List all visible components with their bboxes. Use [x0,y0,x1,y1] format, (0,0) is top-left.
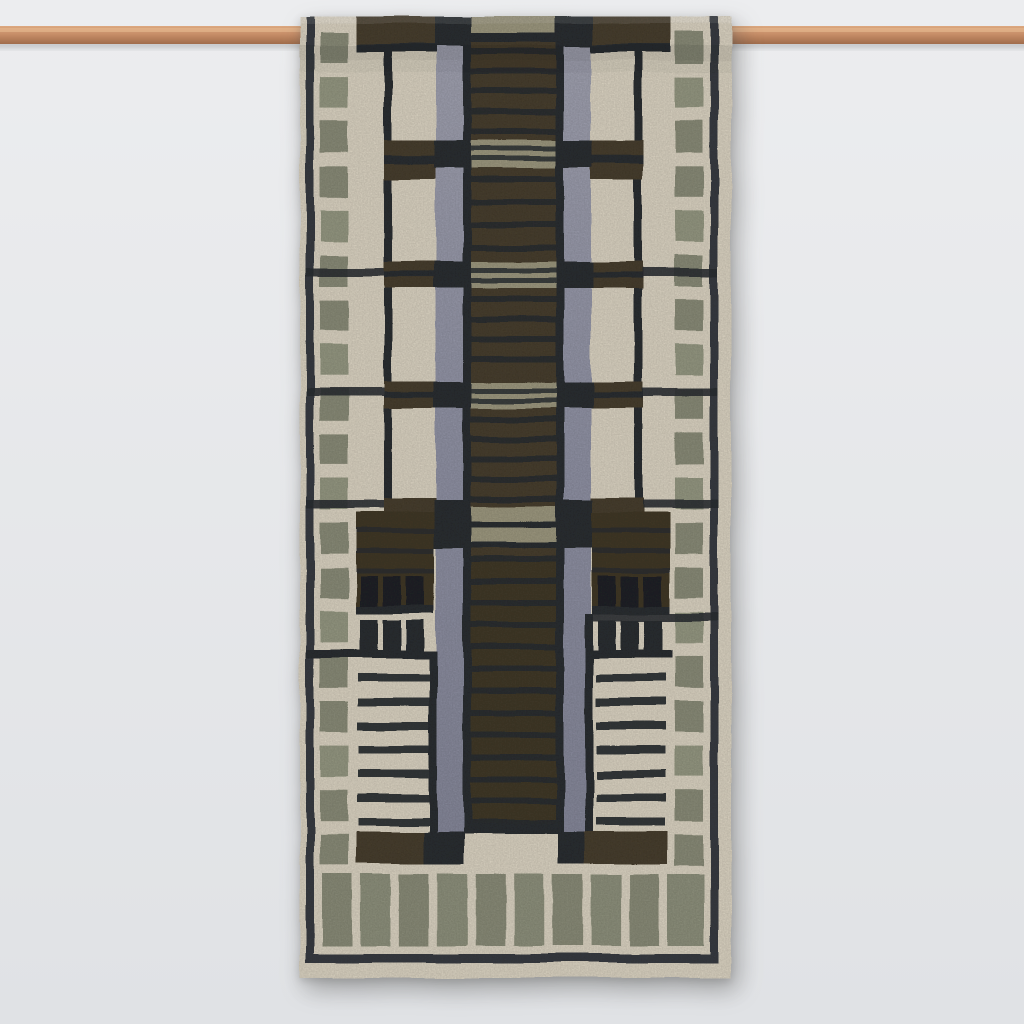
rug-product-photo [0,0,1024,1024]
product-photo-stage [0,0,1024,1024]
rug-wall-hanging [300,17,731,978]
rug-texture [300,17,731,978]
